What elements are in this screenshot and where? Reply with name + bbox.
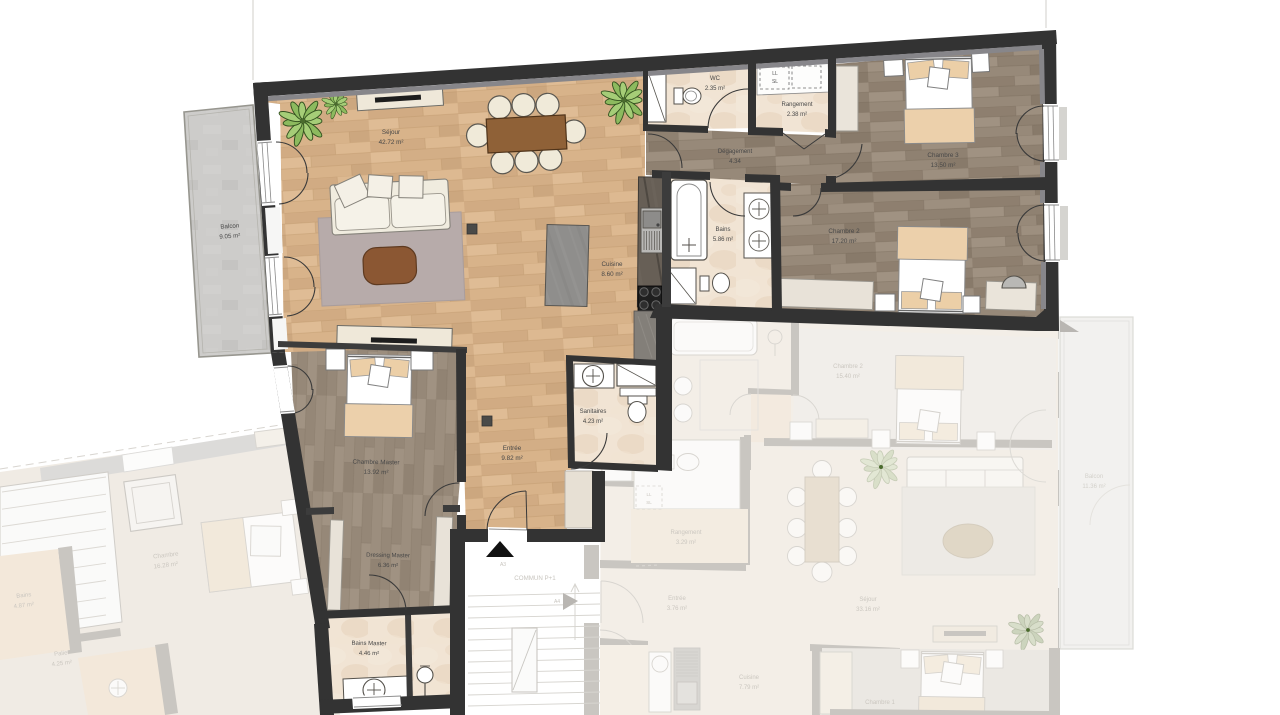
- svg-text:Balcon: Balcon: [220, 222, 240, 230]
- svg-text:7.79 m²: 7.79 m²: [739, 685, 759, 691]
- svg-text:Rangement: Rangement: [670, 530, 701, 536]
- svg-text:Chambre 2: Chambre 2: [833, 364, 863, 370]
- svg-text:6.36 m²: 6.36 m²: [378, 563, 398, 569]
- svg-text:11.36 m²: 11.36 m²: [1082, 484, 1105, 490]
- svg-text:33.16 m²: 33.16 m²: [856, 607, 880, 613]
- svg-text:3.76 m²: 3.76 m²: [667, 606, 687, 612]
- svg-text:3.29 m²: 3.29 m²: [676, 540, 696, 546]
- svg-text:15.40 m²: 15.40 m²: [836, 374, 860, 380]
- svg-text:A3: A3: [500, 562, 506, 568]
- svg-text:SL: SL: [772, 79, 778, 85]
- svg-text:13.92 m²: 13.92 m²: [364, 469, 389, 476]
- svg-text:LL: LL: [646, 492, 652, 497]
- svg-text:42.72 m²: 42.72 m²: [379, 139, 404, 146]
- svg-text:Dressing Master: Dressing Master: [366, 553, 410, 560]
- svg-text:Entrée: Entrée: [503, 445, 522, 452]
- svg-text:17.20 m²: 17.20 m²: [832, 238, 857, 245]
- svg-text:2.38 m²: 2.38 m²: [787, 112, 807, 118]
- svg-text:13.50 m²: 13.50 m²: [931, 162, 956, 169]
- svg-text:Balcon: Balcon: [1085, 474, 1103, 480]
- svg-text:LL: LL: [772, 71, 778, 77]
- svg-text:4.23 m²: 4.23 m²: [583, 419, 603, 425]
- svg-text:2.35 m²: 2.35 m²: [705, 86, 725, 92]
- svg-text:Chambre Master: Chambre Master: [353, 459, 400, 467]
- svg-text:Chambre 2: Chambre 2: [828, 228, 860, 235]
- svg-text:WC: WC: [710, 76, 721, 82]
- svg-text:4.46 m²: 4.46 m²: [359, 651, 379, 657]
- svg-text:Chambre 3: Chambre 3: [927, 152, 959, 159]
- svg-text:A4: A4: [554, 599, 560, 605]
- svg-text:Dégagement: Dégagement: [718, 149, 753, 155]
- svg-text:9.05 m²: 9.05 m²: [219, 232, 240, 240]
- svg-text:Sanitaires: Sanitaires: [580, 409, 607, 415]
- svg-text:8.60 m²: 8.60 m²: [601, 271, 622, 278]
- svg-text:Rangement: Rangement: [781, 102, 812, 108]
- svg-text:Cuisine: Cuisine: [739, 675, 760, 681]
- svg-text:Séjour: Séjour: [859, 597, 876, 603]
- svg-text:Cuisine: Cuisine: [602, 261, 623, 268]
- svg-text:Entrée: Entrée: [668, 596, 686, 602]
- svg-text:Bains: Bains: [715, 227, 730, 233]
- svg-text:9.82 m²: 9.82 m²: [501, 455, 522, 462]
- svg-text:5.86 m²: 5.86 m²: [713, 237, 733, 243]
- svg-text:Chambre 1: Chambre 1: [865, 700, 895, 706]
- svg-text:Séjour: Séjour: [382, 129, 400, 136]
- svg-text:4.34: 4.34: [729, 159, 741, 165]
- svg-text:SL: SL: [646, 500, 652, 505]
- svg-text:Bains Master: Bains Master: [351, 641, 386, 648]
- svg-text:COMMUN P+1: COMMUN P+1: [514, 575, 556, 582]
